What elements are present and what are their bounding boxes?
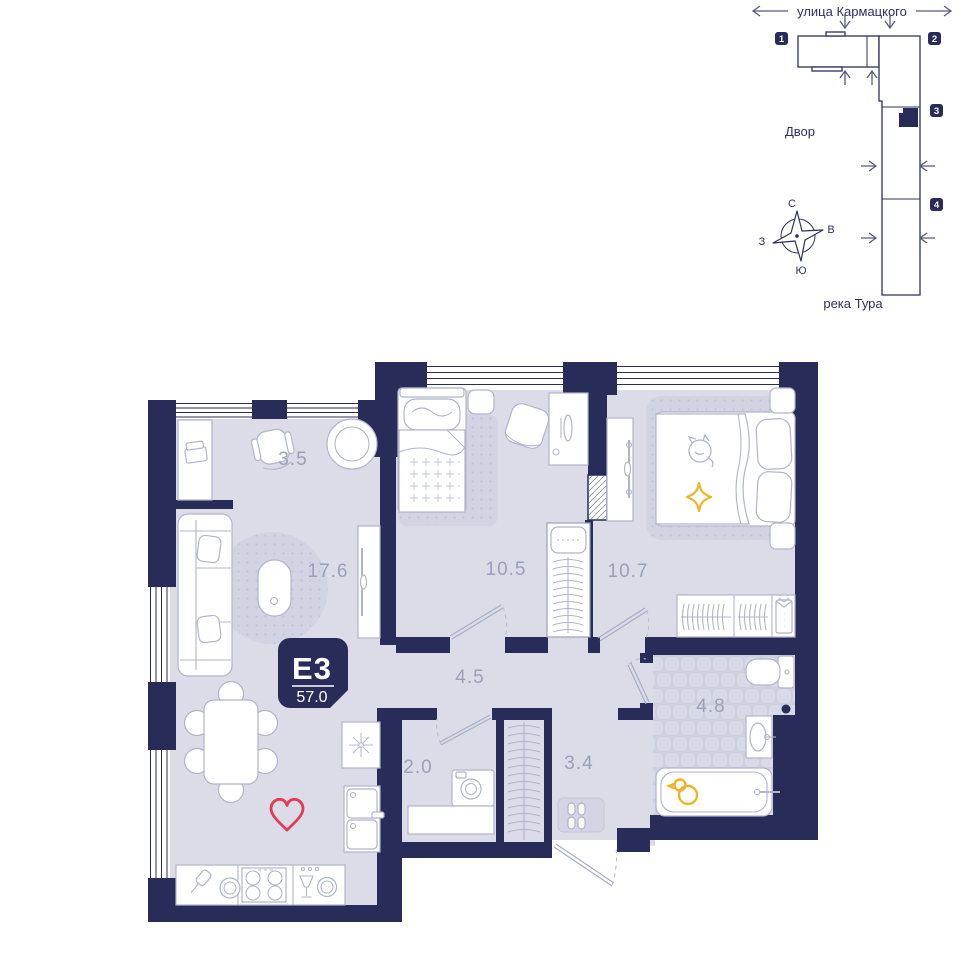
- floorplan-page: улица Кармацкого 1 2: [0, 0, 960, 960]
- compass-east: В: [827, 224, 834, 236]
- laundry-counter: [408, 806, 494, 834]
- unit-total-area: 57.0: [296, 689, 327, 706]
- building-3-4-outline: [879, 36, 920, 295]
- wardrobe-bedroom1: [547, 523, 590, 637]
- room-label-workspace: 3.5: [278, 449, 307, 470]
- toilet: [746, 656, 794, 688]
- svg-text:2: 2: [932, 34, 937, 45]
- kitchen-double-sink: [344, 786, 384, 852]
- room-label-bathroom: 4.8: [696, 696, 725, 717]
- ventilation-shaft: [588, 475, 607, 520]
- entrance-door: [552, 840, 617, 886]
- folded-shirt-icon: [776, 598, 792, 633]
- building-badge-4: 4: [930, 198, 943, 211]
- kitchen-counter: [176, 865, 345, 905]
- room-label-bedroom1: 10.5: [486, 559, 527, 580]
- bedroom2-tv-console: [607, 418, 633, 521]
- site-buildings: [798, 32, 920, 295]
- compass-west: З: [759, 236, 766, 248]
- svg-text:1: 1: [779, 34, 785, 45]
- compass-south: Ю: [795, 265, 806, 277]
- wardrobe-bedroom2: [677, 595, 795, 637]
- bathtub: [656, 768, 780, 816]
- site-plan: улица Кармацкого 1 2: [753, 4, 951, 311]
- room-label-entry: 3.4: [564, 753, 593, 774]
- floor-plan: E3 57.0: [148, 362, 818, 922]
- nightstand-bottom: [770, 523, 795, 549]
- compass-rose-icon: С В Ю З: [759, 198, 835, 277]
- room-label-hallway: 4.5: [455, 667, 484, 688]
- building-notch-bottom: [812, 67, 842, 71]
- room-label-living: 17.6: [308, 561, 349, 582]
- compass-north: С: [788, 198, 796, 210]
- plumbing-riser-dot-1: [386, 812, 395, 821]
- unit-label: E3: [292, 651, 332, 686]
- building-badge-1: 1: [775, 32, 788, 45]
- river-label: река Тура: [823, 296, 883, 311]
- papasan-chair: [327, 419, 377, 469]
- room-label-laundry: 2.0: [403, 757, 432, 778]
- svg-text:4: 4: [934, 200, 940, 211]
- pouf: [468, 390, 494, 414]
- coffee-table: [258, 560, 291, 616]
- window-bedroom1: [427, 363, 563, 390]
- dining-table: [204, 700, 258, 784]
- workspace-desk: [178, 420, 212, 500]
- bed-double: [656, 412, 795, 526]
- room-label-bedroom2: 10.7: [608, 561, 649, 582]
- window-left-2: [148, 750, 170, 878]
- plumbing-riser-dot-2: [782, 705, 791, 714]
- building-badge-2: 2: [928, 32, 941, 45]
- window-left-1: [148, 587, 170, 682]
- svg-text:3: 3: [934, 106, 939, 117]
- stove-icon: [242, 868, 286, 902]
- bathroom-sink: [746, 716, 776, 758]
- doormat-shoes: [558, 798, 604, 832]
- courtyard-label: Двор: [785, 124, 815, 139]
- washing-machine: [452, 770, 494, 806]
- window-bedroom2: [617, 363, 779, 390]
- bed-single: [398, 388, 466, 512]
- nightstand-top: [770, 388, 795, 413]
- building-badge-3: 3: [930, 104, 943, 117]
- sofa: [178, 514, 232, 676]
- kitchen-vent-box: [342, 722, 380, 768]
- tv-stand: [358, 526, 380, 638]
- unit-badge: E3 57.0: [278, 638, 348, 708]
- building-notch-top: [826, 32, 845, 36]
- bedroom1-desk: [549, 393, 588, 465]
